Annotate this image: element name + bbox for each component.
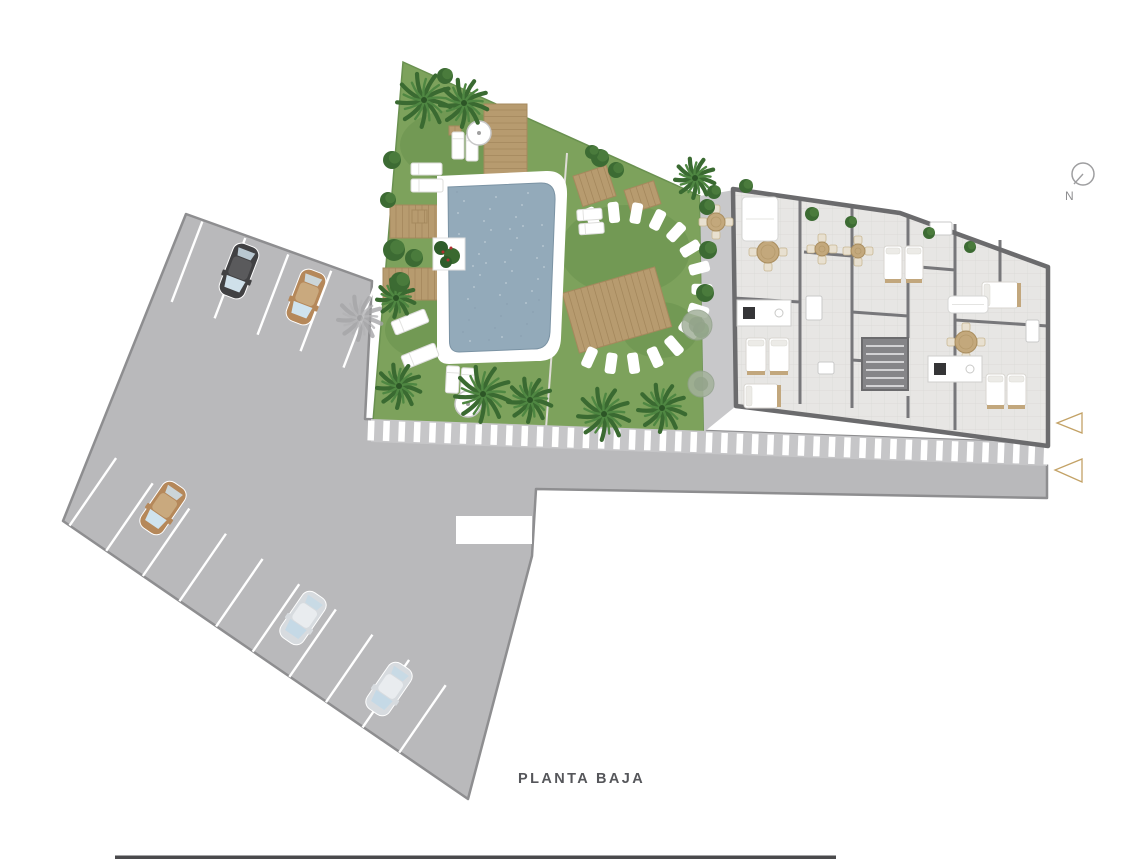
bath-fixture — [1026, 320, 1039, 342]
walkway-stripe — [967, 442, 974, 462]
walkway-stripe — [383, 421, 390, 441]
wood-deck — [412, 210, 427, 223]
walkway-stripe — [567, 427, 574, 447]
walkway-stripe — [475, 424, 482, 444]
walkway-stripe — [782, 435, 789, 455]
walkway-stripe — [536, 426, 543, 446]
walkway-stripe — [367, 420, 374, 440]
walkway-stripe — [705, 432, 712, 452]
paving-notch — [456, 516, 532, 544]
planter — [433, 238, 465, 270]
walkway-stripe — [936, 441, 943, 461]
bed — [769, 338, 789, 375]
walkway-stripe — [751, 434, 758, 454]
walkway-stripe — [951, 441, 958, 461]
walkway-stripe — [429, 423, 436, 443]
walkway-stripe — [1013, 443, 1020, 463]
walkway-stripe — [552, 427, 559, 447]
bush — [383, 151, 401, 169]
compass: N — [1065, 163, 1094, 203]
walkway-stripe — [506, 425, 513, 445]
bath-fixture — [818, 362, 834, 374]
bed — [905, 246, 923, 283]
bush — [405, 249, 423, 267]
walkway-stripe — [997, 443, 1004, 463]
bush — [845, 216, 857, 228]
walkway-stripe — [890, 439, 897, 459]
swimming-pool — [433, 171, 567, 364]
walkway-stripe — [644, 430, 651, 450]
bush — [739, 179, 753, 193]
bush — [383, 239, 405, 261]
bush — [585, 145, 599, 159]
bush — [699, 241, 717, 259]
walkway-stripe — [398, 421, 405, 441]
kitchen-counter — [737, 300, 791, 326]
sun-lounger — [411, 163, 442, 175]
walkway-stripe — [460, 424, 467, 444]
sun-lounger — [577, 208, 603, 221]
page-title: PLANTA BAJA — [518, 771, 645, 787]
umbrella — [467, 121, 491, 145]
walkway-stripe — [844, 437, 851, 457]
bottom-rule — [115, 856, 836, 860]
bed — [744, 384, 781, 408]
walkway-stripe — [859, 438, 866, 458]
bath-fixture — [806, 296, 822, 320]
walkway-stripe — [920, 440, 927, 460]
bush — [699, 199, 715, 215]
walkway-stripe — [675, 431, 682, 451]
bush — [608, 162, 624, 178]
walkway-stripe — [905, 439, 912, 459]
walkway-stripe — [690, 432, 697, 452]
walkway-stripe — [721, 433, 728, 453]
sun-lounger — [452, 132, 464, 159]
walkway-stripe — [1028, 444, 1035, 464]
bed — [986, 374, 1005, 409]
sun-lounger — [579, 222, 605, 235]
street-tree — [688, 371, 714, 397]
sun-lounger — [445, 366, 459, 394]
bed — [884, 246, 902, 283]
floor-plan-page: N PLANTA BAJA — [0, 0, 1140, 860]
walkway-stripe — [982, 442, 989, 462]
site-plan: N — [0, 0, 1140, 860]
bush — [805, 207, 819, 221]
bush — [390, 272, 410, 292]
bush — [437, 68, 453, 84]
walkway-stripe — [736, 433, 743, 453]
plan-marks — [1055, 413, 1082, 482]
bush — [964, 241, 976, 253]
sofa — [742, 197, 778, 241]
bed — [746, 338, 766, 375]
walkway-stripe — [444, 423, 451, 443]
walkway-stripe — [490, 425, 497, 445]
walkway-stripe — [813, 436, 820, 456]
wood-deck — [484, 104, 527, 183]
bush — [380, 192, 396, 208]
street-tree — [682, 310, 712, 340]
sun-lounger — [411, 179, 443, 192]
entrance-arrow — [1057, 413, 1082, 433]
walkway-stripe — [629, 430, 636, 450]
sofa — [948, 296, 988, 313]
walkway-stripe — [828, 437, 835, 457]
bush — [923, 227, 935, 239]
walkway-stripe — [798, 436, 805, 456]
walkway-stripe — [767, 435, 774, 455]
bush — [696, 284, 714, 302]
bush — [707, 185, 721, 199]
walkway-stripe — [521, 426, 528, 446]
stepping-stone — [607, 201, 620, 223]
bed — [1007, 374, 1026, 409]
walkway-stripe — [413, 422, 420, 442]
staircase — [862, 338, 908, 390]
walkway-stripe — [874, 438, 881, 458]
compass-needle — [1074, 174, 1083, 184]
kitchen-counter — [928, 356, 982, 382]
compass-north-label: N — [1065, 189, 1075, 203]
entrance-arrow — [1055, 459, 1082, 482]
